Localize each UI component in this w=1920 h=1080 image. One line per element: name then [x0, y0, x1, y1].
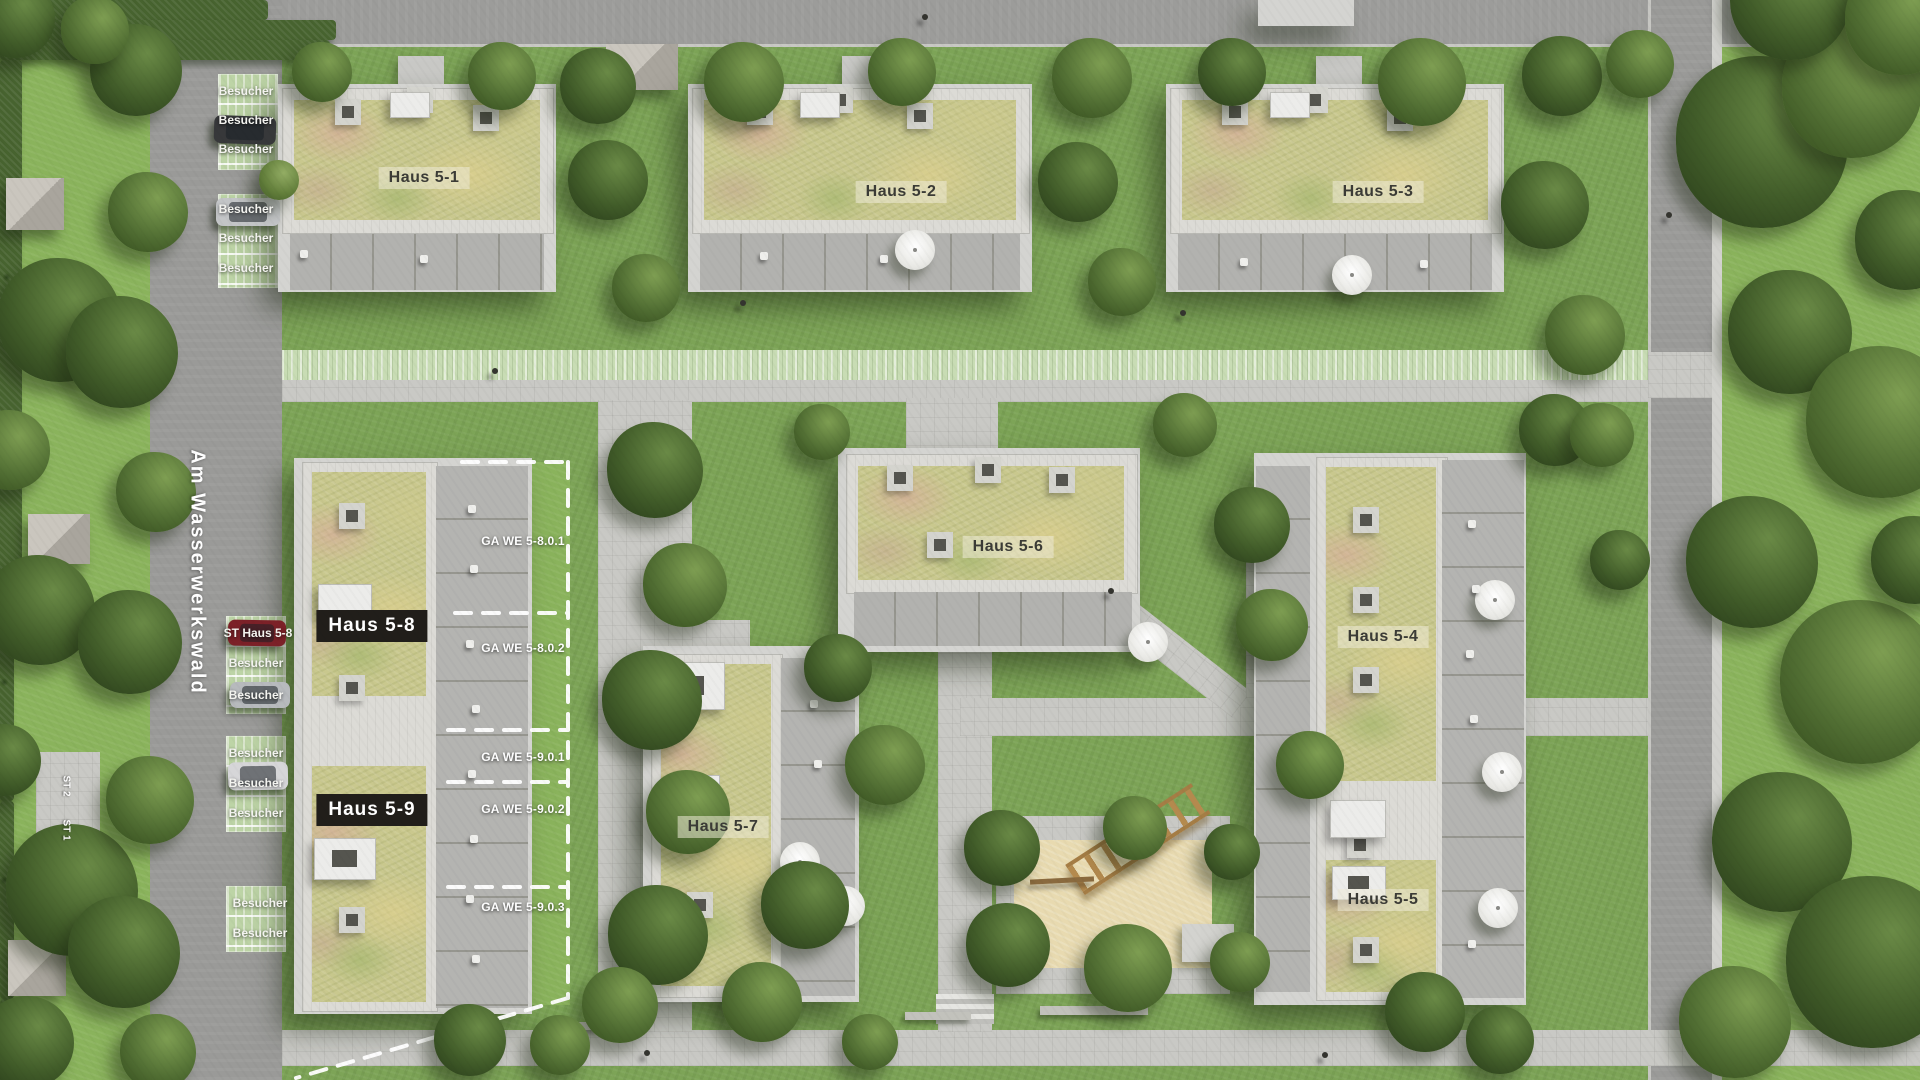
person [740, 300, 746, 306]
skylight [975, 457, 1001, 483]
person [1666, 212, 1672, 218]
terrace-furniture [880, 255, 888, 263]
label-parking-besucher: Besucher [229, 776, 284, 790]
skylight [335, 99, 361, 125]
label-garden-unit: GA WE 5-8.0.2 [481, 641, 565, 655]
building-north [1258, 0, 1354, 26]
tree [1522, 36, 1602, 116]
label-haus-5-2[interactable]: Haus 5-2 [856, 181, 947, 203]
tree [612, 254, 680, 322]
skylight [1353, 937, 1379, 963]
terrace-furniture [300, 250, 308, 258]
tree [61, 0, 129, 64]
tree [761, 861, 849, 949]
person [1108, 588, 1114, 594]
skylight [1353, 587, 1379, 613]
tree [1210, 932, 1270, 992]
label-parking-st-haus-5-8: ST Haus 5-8 [224, 626, 293, 640]
skylight [339, 907, 365, 933]
skylight [1353, 667, 1379, 693]
label-haus-5-9[interactable]: Haus 5-9 [316, 794, 427, 826]
tree [845, 725, 925, 805]
tree [1780, 600, 1920, 764]
tree [643, 543, 727, 627]
tree [116, 452, 196, 532]
skylight [339, 503, 365, 529]
terrace-furniture [760, 252, 768, 260]
terrace-furniture [470, 835, 478, 843]
parasol [1475, 580, 1515, 620]
tree [1855, 190, 1920, 290]
tree [292, 42, 352, 102]
terrace-furniture [472, 955, 480, 963]
tree [804, 634, 872, 702]
tree [0, 410, 50, 490]
green-roof-haus-5-4 [1326, 467, 1436, 781]
label-haus-5-8[interactable]: Haus 5-8 [316, 610, 427, 642]
tree [259, 160, 299, 200]
bench [905, 1012, 971, 1020]
terrace-furniture [814, 760, 822, 768]
person [922, 14, 928, 20]
tree [582, 967, 658, 1043]
tree [1276, 731, 1344, 799]
tree [1084, 924, 1172, 1012]
roof-structure [1270, 92, 1310, 118]
tree [1088, 248, 1156, 316]
tree [1038, 142, 1118, 222]
label-parking-besucher: Besucher [233, 926, 288, 940]
roof-structure [800, 92, 840, 118]
terrace-furniture [1240, 258, 1248, 266]
label-neighbor-spot: ST 2 [61, 775, 72, 796]
tree [966, 903, 1050, 987]
label-haus-5-6[interactable]: Haus 5-6 [963, 536, 1054, 558]
person [492, 368, 498, 374]
skylight [339, 675, 365, 701]
terrace-furniture [1468, 940, 1476, 948]
label-parking-besucher: Besucher [219, 84, 274, 98]
terraces-haus-5-1 [290, 234, 544, 290]
person [1180, 310, 1186, 316]
site-plan: Haus 5-1 Haus 5-2 Haus 5-3 Haus 5-4 Haus… [0, 0, 1920, 1080]
terrace-furniture [472, 705, 480, 713]
tree [842, 1014, 898, 1070]
tree [1545, 295, 1625, 375]
terrace-furniture [420, 255, 428, 263]
terrace-furniture [1420, 260, 1428, 268]
tree [1679, 966, 1791, 1078]
tree [964, 810, 1040, 886]
parasol [1128, 622, 1168, 662]
tree [1153, 393, 1217, 457]
terrace-furniture [1470, 715, 1478, 723]
label-parking-besucher: Besucher [233, 896, 288, 910]
tree [1385, 972, 1465, 1052]
tree [1606, 30, 1674, 98]
skylight [927, 532, 953, 558]
tree [1103, 796, 1167, 860]
roof-structure [390, 92, 430, 118]
label-garden-unit: GA WE 5-9.0.3 [481, 900, 565, 914]
label-parking-besucher: Besucher [219, 202, 274, 216]
tree [1378, 38, 1466, 126]
tree [607, 422, 703, 518]
label-street-name: Am Wasserwerkswald [186, 449, 209, 694]
tree [1466, 1006, 1534, 1074]
skylight [907, 103, 933, 129]
terrace-furniture [468, 770, 476, 778]
tree [68, 896, 180, 1008]
label-parking-besucher: Besucher [229, 806, 284, 820]
terrace-furniture [1466, 650, 1474, 658]
tree [794, 404, 850, 460]
label-garden-unit: GA WE 5-9.0.1 [481, 750, 565, 764]
tree [468, 42, 536, 110]
terraces-haus-5-6 [854, 592, 1132, 646]
roof-structure [1330, 800, 1386, 838]
skylight [887, 465, 913, 491]
label-garden-unit: GA WE 5-9.0.2 [481, 802, 565, 816]
label-parking-besucher: Besucher [229, 688, 284, 702]
tree [722, 962, 802, 1042]
label-haus-5-3[interactable]: Haus 5-3 [1333, 181, 1424, 203]
tree [1686, 496, 1818, 628]
parasol [1482, 752, 1522, 792]
skylight [1049, 467, 1075, 493]
label-garden-unit: GA WE 5-8.0.1 [481, 534, 565, 548]
terrace-furniture [810, 700, 818, 708]
roof-structure [314, 838, 376, 880]
green-roof-haus-5-1 [294, 100, 540, 220]
tree [1198, 38, 1266, 106]
label-parking-besucher: Besucher [219, 231, 274, 245]
tree [568, 140, 648, 220]
parasol [1478, 888, 1518, 928]
tree [646, 770, 730, 854]
tree [120, 1014, 196, 1080]
tree [78, 590, 182, 694]
parasol [1332, 255, 1372, 295]
terrace-furniture [470, 565, 478, 573]
label-parking-besucher: Besucher [219, 113, 274, 127]
tree [530, 1015, 590, 1075]
terraces-haus-5-2 [700, 234, 1020, 290]
tree [1214, 487, 1290, 563]
tree [704, 42, 784, 122]
terrace-furniture [466, 640, 474, 648]
terrace-furniture [1472, 585, 1480, 593]
tree [868, 38, 936, 106]
tree [0, 996, 74, 1080]
tree [108, 172, 188, 252]
garden-shed [6, 178, 64, 230]
skylight [1353, 507, 1379, 533]
label-haus-5-4[interactable]: Haus 5-4 [1338, 626, 1429, 648]
label-parking-besucher: Besucher [229, 746, 284, 760]
label-haus-5-5[interactable]: Haus 5-5 [1338, 889, 1429, 911]
person [644, 1050, 650, 1056]
label-parking-besucher: Besucher [219, 261, 274, 275]
label-parking-besucher: Besucher [219, 142, 274, 156]
terrace-furniture [466, 895, 474, 903]
tree [1570, 403, 1634, 467]
tree [0, 724, 41, 796]
tree [1786, 876, 1920, 1048]
tree [66, 296, 178, 408]
person [1322, 1052, 1328, 1058]
tree [434, 1004, 506, 1076]
tree [560, 48, 636, 124]
tree [106, 756, 194, 844]
tree [602, 650, 702, 750]
tree [1590, 530, 1650, 590]
tree [1204, 824, 1260, 880]
terrace-furniture [468, 505, 476, 513]
tree [1236, 589, 1308, 661]
label-parking-besucher: Besucher [229, 656, 284, 670]
parasol [895, 230, 935, 270]
label-haus-5-1[interactable]: Haus 5-1 [379, 167, 470, 189]
tree [1052, 38, 1132, 118]
tree [1871, 516, 1920, 604]
tree [1501, 161, 1589, 249]
label-haus-5-7[interactable]: Haus 5-7 [678, 816, 769, 838]
label-neighbor-spot: ST 1 [61, 819, 72, 840]
terrace-furniture [1468, 520, 1476, 528]
